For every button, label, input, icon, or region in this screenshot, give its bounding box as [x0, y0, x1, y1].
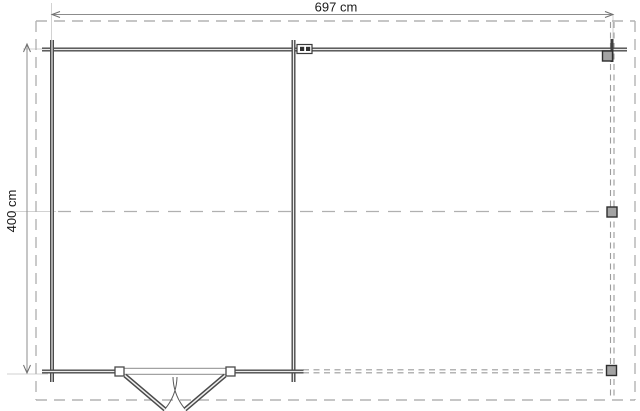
beam-connector: [297, 45, 312, 54]
door-right-swing-arc: [173, 377, 185, 409]
door-right-jamb: [226, 367, 235, 376]
roof-outline: [36, 21, 635, 400]
left-dimension-label: 400 cm: [4, 190, 19, 233]
corner-post-top: [603, 51, 613, 61]
double-door: [115, 367, 235, 410]
floor-plan-canvas: 697 cm 400 cm: [0, 0, 640, 411]
canopy-bottom-edge: [303, 370, 606, 373]
mid-post: [607, 207, 617, 217]
floor-plan-drawing: 697 cm 400 cm: [0, 0, 640, 411]
corner-post-bottom: [607, 366, 617, 376]
beam-connector-bolt-left: [300, 47, 304, 51]
door-frame: [124, 368, 226, 374]
top-dimension: 697 cm: [52, 0, 613, 18]
door-left-leaf-core: [125, 376, 165, 410]
canopy-posts: [603, 39, 618, 376]
door-right-leaf-core: [185, 376, 225, 410]
door-left-jamb: [115, 367, 124, 376]
beam-connector-bolt-right: [306, 47, 310, 51]
top-dimension-label: 697 cm: [315, 0, 358, 15]
door-left-swing-arc: [165, 377, 177, 409]
left-dimension: 400 cm: [4, 44, 31, 373]
dimension-extension-lines: [7, 3, 613, 374]
